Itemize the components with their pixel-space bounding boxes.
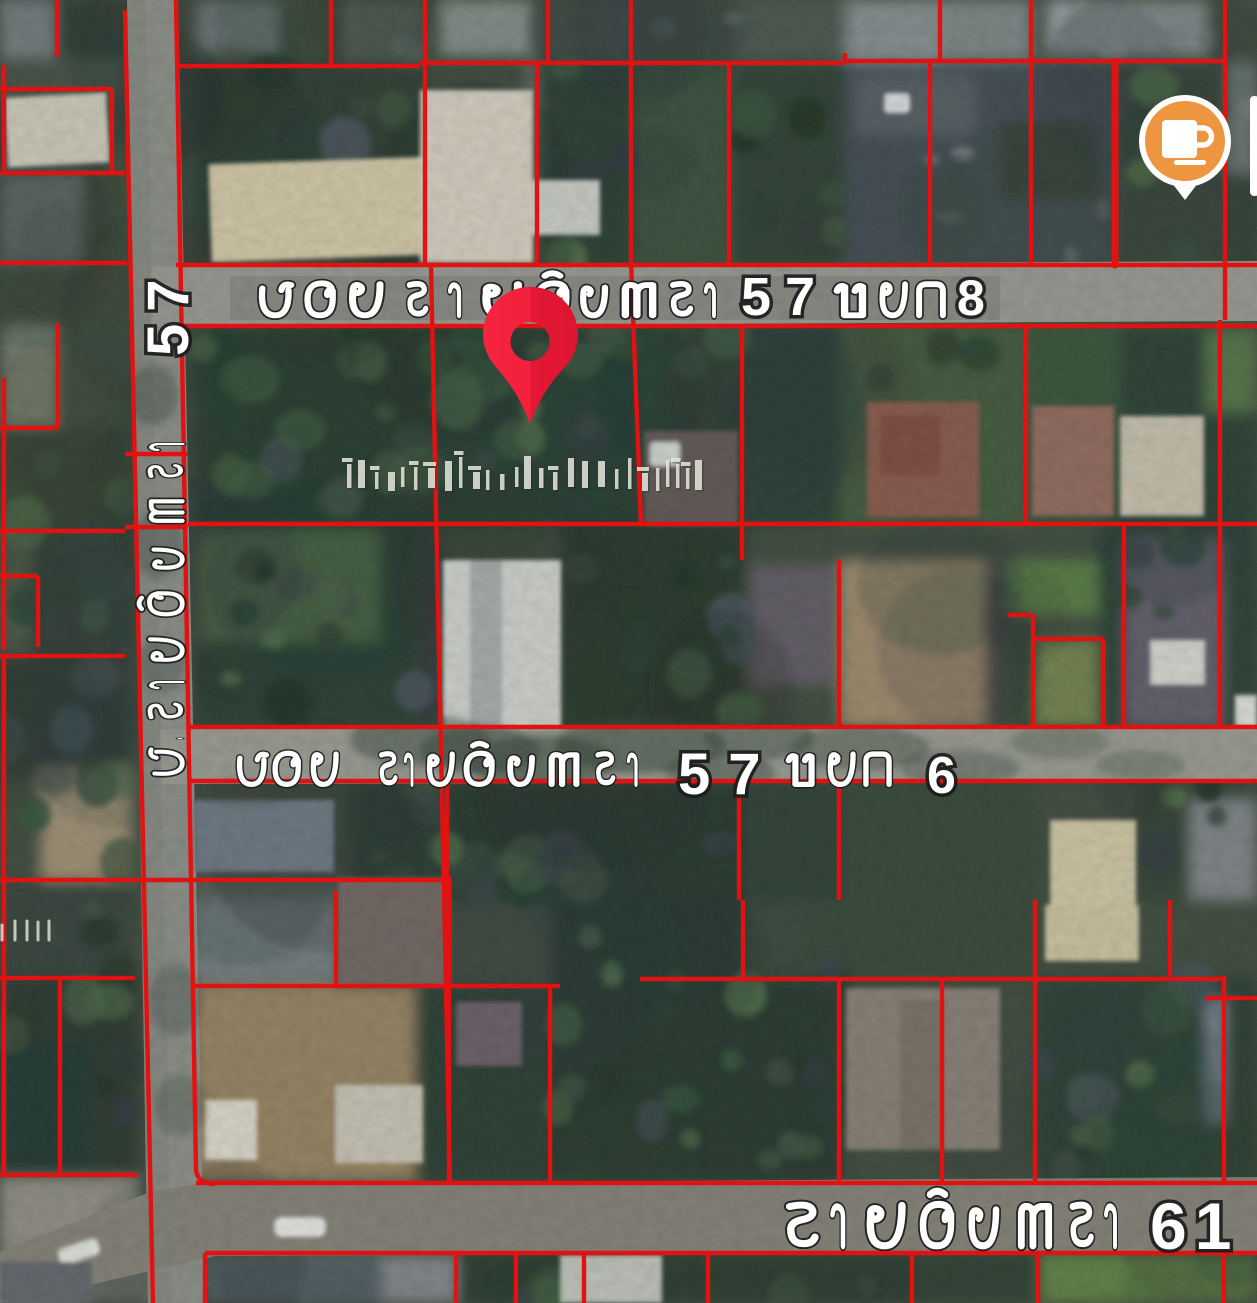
svg-text:57: 57 — [136, 267, 201, 356]
svg-text:8: 8 — [957, 270, 985, 326]
svg-text:61: 61 — [1150, 1189, 1239, 1263]
svg-text:6: 6 — [927, 747, 956, 805]
svg-text:57: 57 — [741, 267, 829, 327]
svg-text:57: 57 — [678, 742, 779, 807]
